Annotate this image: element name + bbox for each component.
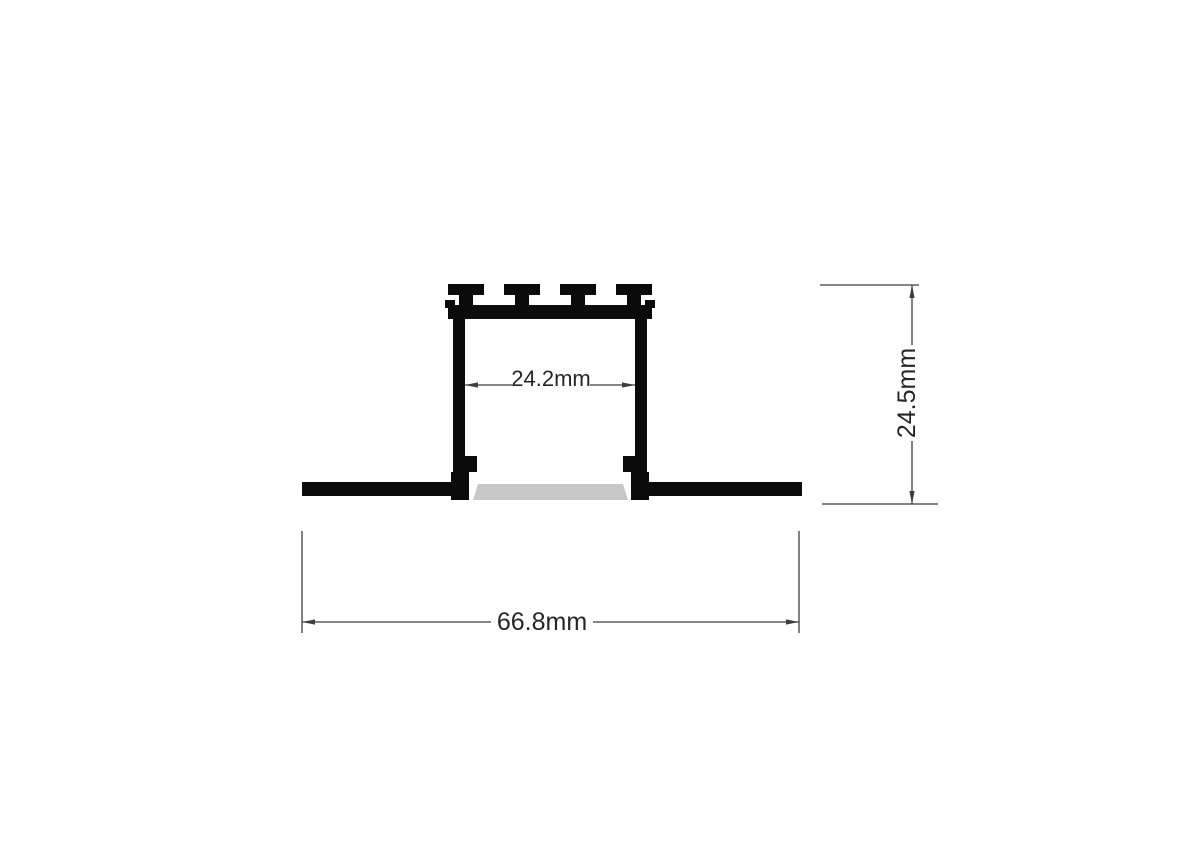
profile-edge-tab-right	[645, 300, 655, 308]
aluminum-profile-silhouette	[302, 284, 802, 500]
tooth-cap	[560, 284, 596, 295]
profile-flange-left	[302, 482, 455, 496]
dimension-label-overall-width: 66.8mm	[497, 608, 587, 636]
tooth-stem	[571, 294, 585, 306]
arrowhead-right	[786, 619, 799, 624]
tooth-stem	[627, 294, 641, 306]
arrowhead-right	[622, 382, 635, 387]
profile-ledge-right	[623, 456, 635, 472]
arrowhead-left	[302, 619, 315, 624]
dimension-label-inner-width: 24.2mm	[511, 366, 590, 391]
arrowhead-up	[909, 285, 914, 298]
arrowhead-down	[909, 491, 914, 504]
dimension-overall-width: 66.8mm	[302, 531, 799, 636]
profile-ledge-left	[465, 456, 477, 472]
profile-top-plate	[448, 305, 652, 319]
dimension-height: 24.5mm	[820, 285, 938, 504]
tooth-stem	[515, 294, 529, 306]
tooth-cap	[616, 284, 652, 295]
profile-edge-tab-left	[445, 300, 455, 308]
tooth-stem	[459, 294, 473, 306]
technical-drawing-canvas: 24.2mm 24.5mm	[0, 0, 1191, 842]
tooth-cap	[504, 284, 540, 295]
dimension-inner-width: 24.2mm	[465, 366, 635, 391]
diffuser-lens	[473, 484, 628, 500]
arrowhead-left	[465, 382, 478, 387]
profile-flange-right	[645, 482, 802, 496]
tooth-cap	[448, 284, 484, 295]
profile-cross-section-svg: 24.2mm 24.5mm	[0, 0, 1191, 842]
dimension-label-height: 24.5mm	[893, 348, 921, 438]
profile-mounting-teeth	[448, 284, 652, 306]
